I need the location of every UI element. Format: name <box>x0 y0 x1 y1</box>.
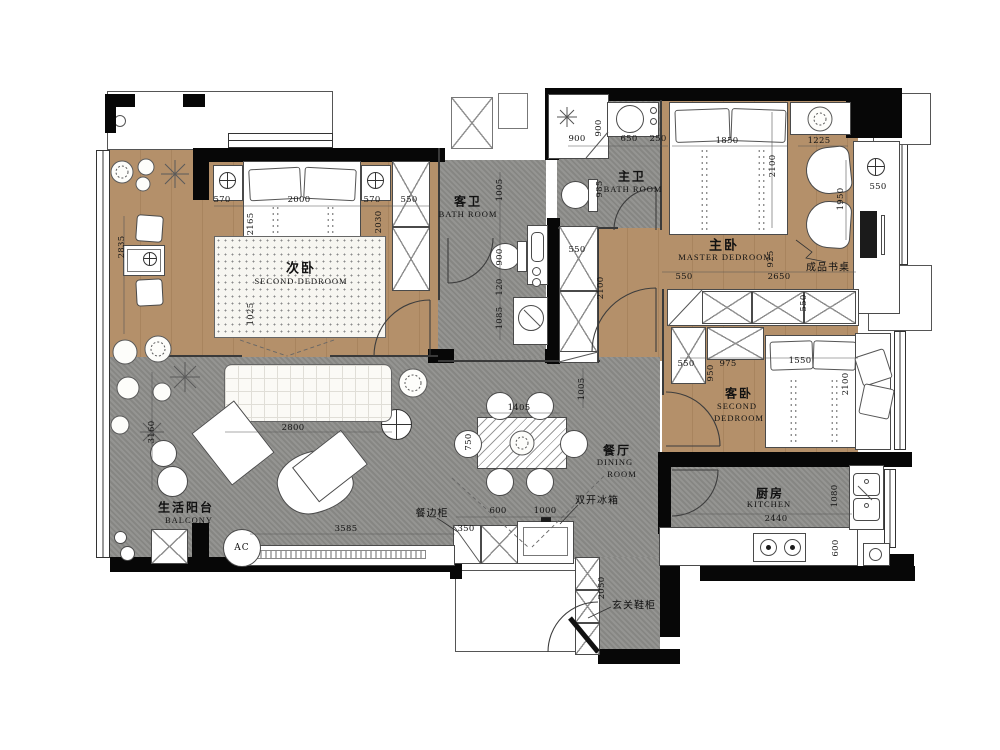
desk-keyboard <box>881 215 885 255</box>
room-label-master-bedroom: 主卧 <box>709 235 739 254</box>
dim-label: 550 <box>869 182 886 192</box>
sink-bowl <box>853 473 880 496</box>
dim-label: 950 <box>706 364 716 381</box>
floor-cushion <box>135 278 163 306</box>
wardrobe <box>392 161 430 227</box>
faucet-dot <box>864 479 869 484</box>
room-label-dining: 餐厅 <box>603 442 631 459</box>
dim-label: 1550 <box>789 356 812 366</box>
toilet <box>561 181 590 209</box>
dining-table <box>477 417 567 469</box>
dim-label: 550 <box>677 359 694 369</box>
room-label-master-bedroom-en: MASTER DEDROOM <box>678 252 772 262</box>
pillow <box>730 108 786 143</box>
annotation-shoe-cabinet: 玄关鞋柜 <box>612 597 656 612</box>
wardrobe <box>392 227 430 291</box>
wall-segment <box>105 94 116 133</box>
guest-wardrobe <box>707 327 764 360</box>
dim-label: 1025 <box>246 303 256 326</box>
window-guest-bay <box>894 331 906 450</box>
dim-label: 2650 <box>768 272 791 282</box>
dim-label: 750 <box>464 433 474 450</box>
dim-label: 350 <box>457 524 474 534</box>
fridge-inner <box>523 527 568 556</box>
dim-label: 3160 <box>147 421 157 444</box>
faucet-dot <box>864 503 869 508</box>
dim-label: 120 <box>495 278 505 295</box>
rug-second-bedroom <box>214 236 386 338</box>
dim-label: 3585 <box>335 524 358 534</box>
window-left <box>96 150 110 558</box>
pillow <box>858 383 895 420</box>
dim-label: 1080 <box>830 485 840 508</box>
round-table <box>150 440 177 467</box>
living-bench <box>224 364 392 422</box>
knob <box>532 267 541 276</box>
dim-label: 550 <box>400 195 417 205</box>
dim-label: 2165 <box>246 213 256 236</box>
wall-segment <box>660 555 680 637</box>
dim-label: 550 <box>675 272 692 282</box>
balcony-item <box>114 531 127 544</box>
room-label-dining-en2: ROOM <box>607 469 637 479</box>
dim-label: 2000 <box>288 195 311 205</box>
annotation-desk: 成品书桌 <box>806 259 850 274</box>
dim-label: 1000 <box>534 506 557 516</box>
hall-wardrobe <box>559 291 598 353</box>
balcony-item <box>120 546 135 561</box>
room-label-guest-bath-en: BATH ROOM <box>439 209 498 219</box>
window-bedroom-top <box>228 133 333 148</box>
partition <box>150 355 242 357</box>
teapot-icon <box>143 252 157 266</box>
partition <box>438 148 440 300</box>
pillow <box>813 340 857 370</box>
ac-label: AC <box>234 543 249 553</box>
dim-label: 1225 <box>808 136 831 146</box>
partition <box>330 355 438 357</box>
knob <box>532 278 541 287</box>
round-table <box>157 466 188 497</box>
ceiling-light-icon <box>867 158 885 176</box>
dining-chair <box>486 468 514 496</box>
floor-hallway <box>597 228 662 361</box>
floor-cushion <box>135 214 164 243</box>
dim-label: 1085 <box>495 307 505 330</box>
wall-segment <box>193 148 445 162</box>
blanket-runner <box>700 148 709 230</box>
balcony-washbox <box>151 529 188 564</box>
floor-plan: AC <box>0 0 1000 750</box>
dim-label: 600 <box>831 539 841 556</box>
wall-segment <box>700 566 915 581</box>
wall-segment <box>183 94 205 107</box>
room-label-guest-bedroom-en1: SECOND <box>717 401 757 411</box>
room-label-dining-en1: DINING <box>597 457 633 467</box>
room-label-guest-bath: 客卫 <box>454 193 482 210</box>
desk-monitor <box>860 211 877 258</box>
wall-segment <box>658 452 671 534</box>
ceiling-light-icon <box>367 172 384 189</box>
room-label-second-bedroom-en: SECOND DEDROOM <box>254 276 347 286</box>
annotation-fridge: 双开冰箱 <box>575 492 619 507</box>
room-label-balcony-en: BALCONY <box>165 515 213 525</box>
partition <box>662 289 664 395</box>
blanket-runner <box>789 378 797 442</box>
knob <box>650 107 657 114</box>
wall-segment <box>598 649 680 664</box>
round-basin <box>616 105 644 133</box>
dim-label: 2100 <box>596 277 606 300</box>
pillow <box>303 167 357 202</box>
burner-dot <box>766 545 771 550</box>
annotation-sideboard: 餐边柜 <box>416 505 449 520</box>
room-label-second-bedroom: 次卧 <box>286 258 316 277</box>
dim-label: 900 <box>594 119 604 136</box>
dining-chair <box>560 430 588 458</box>
dim-label: 2800 <box>282 423 305 433</box>
dim-label: 2835 <box>117 236 127 259</box>
wall-segment <box>846 88 902 138</box>
hall-cabinet-end <box>559 351 598 363</box>
tv-unit <box>254 550 426 559</box>
dim-label: 2440 <box>765 514 788 524</box>
dim-label: 2050 <box>597 577 607 600</box>
room-label-guest-bedroom: 客卧 <box>725 385 753 402</box>
shaft-box <box>451 97 493 149</box>
dim-label: 1005 <box>495 179 505 202</box>
dim-label: 1850 <box>716 136 739 146</box>
partition <box>660 100 662 230</box>
dim-label: 600 <box>489 506 506 516</box>
dim-label: 550 <box>568 245 585 255</box>
dim-label: 250 <box>649 134 666 144</box>
burner-dot <box>790 545 795 550</box>
vanity-sink <box>531 232 544 262</box>
dim-label: 2100 <box>841 373 851 396</box>
wall-segment <box>193 148 209 200</box>
room-label-balcony: 生活阳台 <box>158 499 214 516</box>
room-label-guest-bedroom-en2: DEDROOM <box>714 413 764 423</box>
cabinet-cell <box>752 291 804 324</box>
ceiling-light-icon <box>219 172 236 189</box>
dim-label: 900 <box>495 248 505 265</box>
round-basin <box>518 305 544 331</box>
dim-label: 1405 <box>508 403 531 413</box>
dim-label: 2030 <box>374 211 384 234</box>
knob <box>650 118 657 125</box>
cabinet-cell <box>702 291 752 324</box>
cabinet-cell <box>804 291 856 324</box>
blanket-runner <box>830 378 838 442</box>
dim-label: 2100 <box>768 155 778 178</box>
dim-label: 550 <box>799 294 809 311</box>
dim-label: 1005 <box>577 378 587 401</box>
wall-segment <box>192 523 209 563</box>
corner-knob <box>869 548 882 561</box>
room-label-master-bath: 主卫 <box>618 168 646 185</box>
guest-wardrobe <box>671 327 706 384</box>
shaft-box-small <box>498 93 528 129</box>
dim-label: 975 <box>719 359 736 369</box>
hall-wardrobe <box>559 226 598 291</box>
dim-label: 650 <box>620 134 637 144</box>
sink-bowl <box>853 498 880 521</box>
dim-label: 570 <box>213 195 230 205</box>
toilet-tank <box>517 241 527 272</box>
dim-label: 570 <box>363 195 380 205</box>
blanket-runner <box>757 148 766 230</box>
room-label-kitchen-en: KITCHEN <box>747 499 791 509</box>
dim-label: 1950 <box>836 188 846 211</box>
sideboard-cabinet <box>481 525 518 564</box>
entry-shoe-cabinet <box>575 623 600 655</box>
dim-label: 900 <box>568 134 585 144</box>
fridge-handle <box>541 517 551 522</box>
room-label-master-bath-en: BATH ROOM <box>604 184 663 194</box>
window-kitchen <box>884 469 896 548</box>
dining-chair <box>526 468 554 496</box>
partition <box>438 360 548 362</box>
plant-box <box>790 102 851 135</box>
